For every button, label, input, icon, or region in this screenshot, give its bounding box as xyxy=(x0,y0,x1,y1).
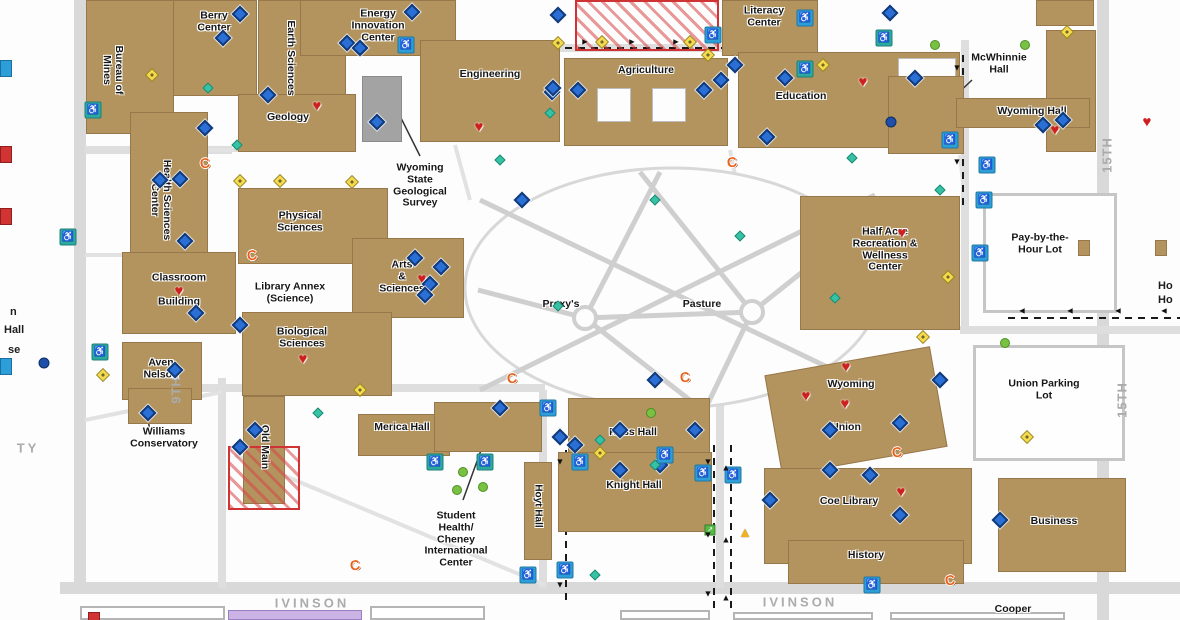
info-marker-icon xyxy=(1000,338,1010,348)
accessible-parking-icon: ♿ xyxy=(705,27,722,44)
label-mcwhinnie-hall: McWhinnie Hall xyxy=(971,52,1026,76)
aed-heart-icon: ♥ xyxy=(841,397,850,412)
one-way-arrow-icon: ▲ xyxy=(722,536,731,545)
building-bottom-building-1 xyxy=(80,606,225,620)
label-library-annex-science: Library Annex (Science) xyxy=(255,281,325,305)
edge-label: Ho xyxy=(1158,294,1173,306)
aed-heart-icon: ♥ xyxy=(1143,115,1152,130)
one-way-arrow-icon: ◄ xyxy=(1160,307,1169,316)
accessible-parking-icon: ♿ xyxy=(85,102,102,119)
label-union-parking-lot: Union Parking Lot xyxy=(1008,378,1079,402)
one-way-arrow-icon: ▼ xyxy=(556,581,565,590)
building-health-center-building xyxy=(434,402,542,452)
label-wyoming-state-geological-survey: Wyoming State Geological Survey xyxy=(393,163,447,210)
building-bottom-building-3 xyxy=(620,610,710,620)
building-bottom-building-4 xyxy=(733,612,873,620)
building-bottom-purple-building xyxy=(228,610,362,620)
accessible-parking-icon: ♿ xyxy=(520,567,537,584)
edge-label: n xyxy=(10,306,17,318)
street-label-15th: 15TH xyxy=(1100,137,1115,173)
one-way-arrow-icon: ◄ xyxy=(1018,307,1027,316)
campus-map: Berry CenterBureau of MinesEarth Science… xyxy=(0,0,1180,620)
building-label-literacy-center: Literacy Center xyxy=(744,5,784,29)
street-label-ty: TY xyxy=(17,441,40,456)
info-marker-icon xyxy=(646,408,656,418)
one-way-arrow-icon: ▼ xyxy=(704,590,713,599)
building-union-parking-lot-area xyxy=(974,346,1124,460)
cutoff-marker-icon xyxy=(0,208,12,225)
one-way-arrow-icon: ▼ xyxy=(953,64,962,73)
aed-heart-icon: ♥ xyxy=(897,485,906,500)
building-engineering xyxy=(420,40,560,142)
aed-heart-icon: ♥ xyxy=(802,389,811,404)
aed-heart-icon: ♥ xyxy=(299,352,308,367)
building-label-history: History xyxy=(848,550,884,562)
edge-label: se xyxy=(8,344,20,356)
building-geological-survey-building xyxy=(362,76,402,142)
building-pay-lot-kiosk-2 xyxy=(1155,240,1167,256)
street-label-15th: 15TH xyxy=(1115,382,1130,418)
building-label-business: Business xyxy=(1031,516,1078,528)
edge-label: Ho xyxy=(1158,280,1173,292)
emergency-phone-icon: C xyxy=(199,155,211,170)
emergency-phone-icon: C xyxy=(891,444,903,459)
accessible-parking-icon: ♿ xyxy=(942,132,959,149)
building-pay-lot-kiosk-1 xyxy=(1078,240,1090,256)
edge-label: Hall xyxy=(4,324,24,336)
info-marker-icon xyxy=(478,482,488,492)
building-label-bureau-of-mines: Bureau of Mines xyxy=(100,45,124,94)
building-label-coe-library: Coe Library xyxy=(820,496,878,508)
emergency-phone-icon: C xyxy=(349,557,361,572)
street-label-ivinson: IVINSON xyxy=(275,596,349,611)
one-way-arrow-icon: ▲ xyxy=(722,464,731,473)
cutoff-marker-icon xyxy=(0,358,12,375)
accessible-parking-icon: ♿ xyxy=(976,192,993,209)
building-label-engineering: Engineering xyxy=(460,69,521,81)
building-bottom-building-2 xyxy=(370,606,485,620)
building-agriculture-courtyard-1 xyxy=(597,88,631,122)
building-label-hoyt-hall: Hoyt Hall xyxy=(532,484,543,527)
aed-heart-icon: ♥ xyxy=(1051,123,1060,138)
emergency-phone-icon: C xyxy=(944,572,956,587)
one-way-arrow-icon: ▼ xyxy=(556,458,565,467)
cutoff-marker-icon xyxy=(0,60,12,77)
accessible-parking-icon: ♿ xyxy=(979,157,996,174)
one-way-arrow-icon: ◄ xyxy=(1114,307,1123,316)
label-student-health-cheney-international-center: Student Health/ Cheney International Cen… xyxy=(424,511,487,570)
label-cooper: Cooper xyxy=(995,604,1032,616)
aed-heart-icon: ♥ xyxy=(475,120,484,135)
accessible-parking-icon: ♿ xyxy=(695,465,712,482)
label-wyoming-hall: Wyoming Hall xyxy=(997,106,1066,118)
accessible-parking-icon: ♿ xyxy=(572,454,589,471)
accessible-parking-icon: ♿ xyxy=(60,229,77,246)
one-way-arrow-icon: ◄ xyxy=(1066,307,1075,316)
aed-heart-icon: ♥ xyxy=(175,284,184,299)
building-label-geology: Geology xyxy=(267,112,309,124)
building-label-half-acre: Half Acre Recreation & Wellness Center xyxy=(853,227,918,274)
emergency-phone-icon: C xyxy=(679,369,691,384)
accessible-parking-icon: ♿ xyxy=(92,344,109,361)
one-way-arrow-icon: ► xyxy=(672,38,681,47)
info-marker-icon xyxy=(1020,40,1030,50)
one-way-arrow-icon: ► xyxy=(628,38,637,47)
emergency-phone-icon: C xyxy=(506,370,518,385)
one-way-arrow-icon: ▼ xyxy=(704,531,713,540)
accessible-parking-icon: ♿ xyxy=(540,400,557,417)
building-label-biological-sciences: Biological Sciences xyxy=(277,326,327,350)
building-label-knight-hall: Knight Hall xyxy=(606,480,661,492)
building-label-physical-sciences: Physical Sciences xyxy=(277,210,323,234)
accessible-parking-icon: ♿ xyxy=(797,10,814,27)
marker-dot-icon xyxy=(886,117,897,128)
building-label-education: Education xyxy=(776,91,827,103)
building-ne-corner-building xyxy=(1036,0,1094,26)
building-bottom-building-5 xyxy=(890,612,1065,620)
aed-heart-icon: ♥ xyxy=(898,226,907,241)
aed-heart-icon: ♥ xyxy=(842,360,851,375)
label-williams-conservatory: Williams Conservatory xyxy=(130,426,198,450)
one-way-arrow-icon: ▲ xyxy=(722,594,731,603)
accessible-parking-icon: ♿ xyxy=(557,562,574,579)
accessible-parking-icon: ♿ xyxy=(398,37,415,54)
accessible-parking-icon: ♿ xyxy=(876,30,893,47)
info-marker-icon xyxy=(930,40,940,50)
cutoff-marker-icon xyxy=(0,146,12,163)
one-way-arrow-icon: ► xyxy=(581,38,590,47)
street-label-ivinson: IVINSON xyxy=(763,595,837,610)
one-way-arrow-icon: ▼ xyxy=(953,158,962,167)
info-marker-icon xyxy=(458,467,468,477)
building-label-earth-sciences: Earth Sciences xyxy=(284,20,296,95)
label-merica-hall: Merica Hall xyxy=(374,422,429,434)
accessible-parking-icon: ♿ xyxy=(477,454,494,471)
one-way-arrow-icon: ▼ xyxy=(704,458,713,467)
label-pasture: Pasture xyxy=(683,299,722,311)
emergency-phone-icon: C xyxy=(246,247,258,262)
label-wyoming-union-line1: Wyoming xyxy=(827,379,874,391)
accessible-parking-icon: ♿ xyxy=(427,454,444,471)
accessible-parking-icon: ♿ xyxy=(972,245,989,262)
warning-triangle-icon: ▲ xyxy=(738,525,752,539)
accessible-parking-icon: ♿ xyxy=(864,577,881,594)
aed-heart-icon: ♥ xyxy=(313,99,322,114)
cutoff-marker-icon xyxy=(88,612,100,620)
label-pay-by-the-hour-lot: Pay-by-the- Hour Lot xyxy=(1011,232,1068,256)
building-label-agriculture: Agriculture xyxy=(618,65,674,77)
emergency-phone-icon: C xyxy=(726,154,738,169)
accessible-parking-icon: ♿ xyxy=(797,61,814,78)
marker-dot-icon xyxy=(39,358,50,369)
building-label-berry-center: Berry Center xyxy=(197,10,230,34)
info-marker-icon xyxy=(452,485,462,495)
building-agriculture-courtyard-2 xyxy=(652,88,686,122)
accessible-parking-icon: ♿ xyxy=(657,447,674,464)
aed-heart-icon: ♥ xyxy=(859,75,868,90)
